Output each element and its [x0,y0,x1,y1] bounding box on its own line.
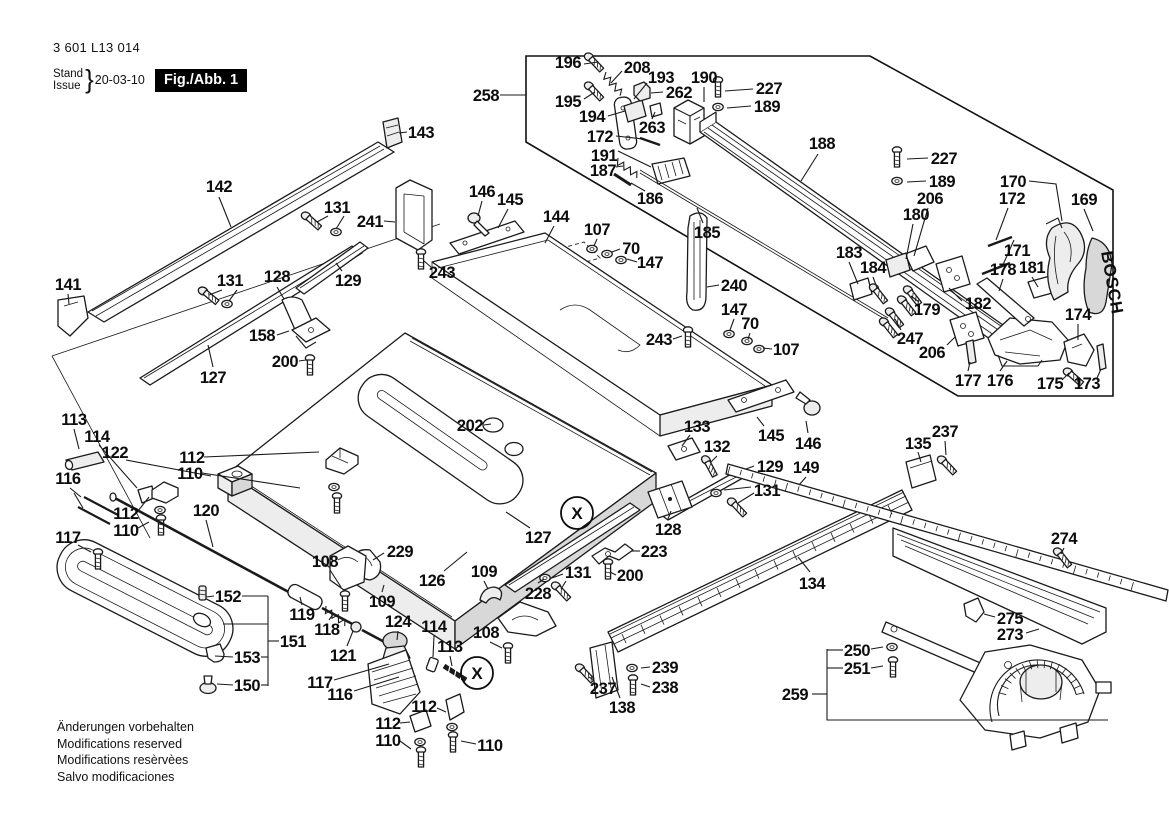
part-label-174: 174 [1065,306,1093,324]
part-label-176: 176 [987,372,1014,390]
part-label-118: 118 [314,621,340,639]
leader-line [727,106,751,108]
leader-line [724,487,751,490]
part-label-187: 187 [590,162,617,180]
part-label-138: 138 [609,699,636,717]
leader-line [1029,181,1062,221]
washer-250 [887,643,897,650]
part-label-190: 190 [691,69,718,87]
handle-cover-169: BOSCH [1084,238,1127,316]
part-label-127: 127 [200,369,227,387]
part-label-178: 178 [990,261,1017,279]
part-label-109: 109 [369,593,396,611]
part-label-223: 223 [641,543,668,561]
part-label-158: 158 [249,327,276,345]
leader-line [478,201,482,216]
screw-110-bl [416,747,425,767]
leader-line [612,249,620,252]
pin-186 [614,174,631,185]
part-label-263: 263 [639,119,666,137]
washer-239 [627,664,637,671]
notice-en: Modifications reserved [57,736,194,753]
part-label-108: 108 [473,624,500,642]
clip-263 [650,103,662,117]
section-marker-label: X [571,504,583,523]
part-label-202: 202 [457,417,484,435]
clip-112-br [446,694,464,720]
leader-line [400,741,411,749]
part-label-194: 194 [579,108,607,126]
figure-label: Fig./Abb. 1 [155,69,247,92]
screw-200-upper [305,355,314,375]
part-label-133: 133 [684,418,711,436]
part-label-152: 152 [215,588,242,606]
notice-de: Änderungen vorbehalten [57,719,194,736]
part-label-184: 184 [860,259,888,277]
leader-line [611,71,622,83]
part-label-259: 259 [782,686,809,704]
screw-108-left [340,591,349,611]
screw-110-br [448,732,457,752]
bracket-241 [396,180,432,250]
part-label-146: 146 [469,183,496,201]
leader-line [219,197,231,227]
nut-121 [351,622,361,632]
part-label-112: 112 [375,715,401,733]
washer-110-mid [155,506,165,513]
part-label-112: 112 [411,698,437,716]
brace-glyph: } [85,64,94,95]
leader-line [806,421,808,433]
leader-line [907,158,928,159]
notice-es: Salvo modificaciones [57,769,194,786]
leader-line [738,493,754,503]
part-label-110: 110 [477,737,503,755]
cam-lever-170 [1046,218,1085,300]
part-label-243: 243 [646,331,673,349]
part-label-153: 153 [234,649,261,667]
part-label-128: 128 [655,521,682,539]
washer-131-right [711,489,721,496]
screw-117-left [93,549,102,569]
issue-label: Issue [53,80,83,92]
bolt-131-lower [548,581,574,602]
part-label-135: 135 [905,435,932,453]
exploded-parts-diagram-page: BOSCH [0,0,1169,826]
part-label-141: 141 [55,276,82,294]
leader-line [801,154,818,181]
leader-line [849,262,858,284]
screw-238 [628,675,637,695]
leader-line [277,331,289,335]
leader-line [799,477,806,485]
part-label-208: 208 [624,59,651,77]
leader-line [490,642,502,648]
part-label-172: 172 [999,190,1026,208]
part-label-189: 189 [754,98,781,116]
part-label-131: 131 [217,272,244,290]
clamp-174 [1064,334,1094,366]
part-label-181: 181 [1019,259,1046,277]
leader-line [730,319,734,330]
part-label-173: 173 [1074,375,1101,393]
bolt-146-right [796,392,820,415]
part-label-124: 124 [385,613,413,631]
part-label-228: 228 [525,585,552,603]
part-label-182: 182 [965,295,992,313]
clip-275 [964,598,984,622]
part-label-274: 274 [1051,530,1079,548]
part-label-108: 108 [312,553,339,571]
main-table [228,333,656,649]
leader-line [206,520,213,547]
leader-line [641,684,650,687]
part-label-116: 116 [327,686,353,704]
part-label-250: 250 [844,642,871,660]
part-label-121: 121 [330,647,357,665]
leader-line [1026,629,1039,633]
part-label-206: 206 [919,344,946,362]
part-label-195: 195 [555,93,582,111]
part-label-144: 144 [543,208,571,226]
part-label-227: 227 [756,80,783,98]
leader-line [384,221,395,222]
part-label-183: 183 [836,244,863,262]
part-label-188: 188 [809,135,836,153]
leader-line [746,466,754,469]
leader-line [641,667,650,668]
fence-end-cluster: BOSCH [850,147,1127,387]
leader-line [461,741,476,744]
leader-line [1084,209,1093,231]
part-label-169: 169 [1071,191,1098,209]
part-label-109: 109 [471,563,498,581]
part-label-200: 200 [617,567,644,585]
part-label-128: 128 [264,268,291,286]
pin-113-left [65,452,104,470]
end-cap-141 [58,296,88,336]
leader-line [437,708,446,712]
washer-110-br [447,723,457,730]
screw-150 [200,676,216,694]
leader-line [206,596,214,597]
part-label-229: 229 [387,543,414,561]
part-label-170: 170 [1000,173,1027,191]
leader-line [871,647,883,649]
part-label-172: 172 [587,128,614,146]
exploded-parts-diagram: BOSCH [0,0,1169,826]
part-label-119: 119 [289,606,315,624]
leader-line [299,360,306,361]
part-label-131: 131 [754,482,781,500]
part-label-189: 189 [929,173,956,191]
leader-line [347,631,353,646]
issue-date: 20-03-10 [95,73,145,87]
part-label-107: 107 [584,221,611,239]
leader-line [996,208,1008,240]
leader-line [208,345,213,367]
washer-131-mid [331,228,341,235]
screw-237-right [934,455,960,476]
leader-line [725,89,753,91]
leader-line [336,216,344,229]
part-number: 3 601 L13 014 [53,40,145,55]
stand-label: Stand [53,68,83,80]
clip-153 [206,644,224,662]
part-label-129: 129 [757,458,784,476]
leader-line [945,441,946,455]
clip-133 [668,438,700,460]
part-label-251: 251 [844,660,871,678]
leader-line [984,614,995,617]
part-label-113: 113 [437,638,463,656]
washer-110-bl [415,738,425,745]
part-label-241: 241 [357,213,384,231]
part-label-134: 134 [799,575,827,593]
part-label-132: 132 [704,438,731,456]
part-label-175: 175 [1037,375,1064,393]
leader-line [74,429,79,449]
part-label-177: 177 [955,372,982,390]
leader-line [710,456,717,463]
part-label-200: 200 [272,353,299,371]
screw-200-lower [603,559,612,579]
part-label-237: 237 [932,423,959,441]
part-label-149: 149 [793,459,820,477]
pin-172-left [640,138,660,145]
part-label-127: 127 [525,529,552,547]
part-label-70: 70 [741,315,759,333]
leader-line [561,581,566,589]
part-label-129: 129 [335,272,362,290]
part-label-145: 145 [497,191,524,209]
part-label-186: 186 [637,190,664,208]
bolt-131-right [724,497,750,518]
part-label-120: 120 [193,502,220,520]
washer-147-lower [724,330,734,337]
washer-110-top [329,483,339,490]
part-label-110: 110 [375,732,401,750]
leader-line [757,417,764,426]
washer-107-lower [754,345,764,352]
notice-fr: Modifications resèrvèes [57,752,194,769]
part-label-273: 273 [997,626,1024,644]
screw-110-top [332,493,341,513]
leader-line [707,285,719,287]
part-label-145: 145 [758,427,785,445]
part-label-146: 146 [795,435,822,453]
part-label-196: 196 [555,54,582,72]
part-label-258: 258 [473,87,500,105]
part-label-112: 112 [113,505,139,523]
part-label-143: 143 [408,124,435,142]
modification-notices: Änderungen vorbehalten Modifications res… [57,719,194,785]
part-label-171: 171 [1004,242,1031,260]
part-label-116: 116 [55,470,81,488]
part-label-114: 114 [421,618,448,636]
leader-line [627,259,637,262]
part-label-239: 239 [652,659,679,677]
part-label-122: 122 [102,444,129,462]
screw-108-right [503,643,512,663]
part-label-180: 180 [903,206,930,224]
leader-line [907,181,926,182]
screw-243-lower [683,327,692,347]
leader-line [871,666,883,668]
part-label-240: 240 [721,277,748,295]
screw-243-upper [416,249,425,269]
leader-line [584,92,595,99]
part-label-117: 117 [55,529,81,547]
leader-line [618,151,651,167]
washer-189-right [892,177,902,184]
part-label-110: 110 [113,522,139,540]
leader-line [217,684,233,685]
part-label-131: 131 [324,199,351,217]
part-label-151: 151 [280,633,307,651]
part-label-243: 243 [429,264,456,282]
part-label-185: 185 [694,224,721,242]
bolt-146-upper [468,213,489,236]
part-label-179: 179 [914,301,941,319]
leader-line [209,290,222,295]
part-label-142: 142 [206,178,233,196]
part-label-237: 237 [590,680,617,698]
washer-107-upper [587,245,597,252]
leader-line [400,722,410,723]
pin-114-right [426,657,439,672]
section-marker-label: X [471,664,483,683]
leader-line [594,239,597,246]
screw-227-right [892,147,901,167]
part-label-110: 110 [177,465,203,483]
part-label-113: 113 [61,411,87,429]
clip-183 [850,278,872,300]
leader-line [433,636,434,657]
pin-177 [966,340,976,364]
part-label-126: 126 [419,572,446,590]
screw-251 [888,657,897,677]
part-label-227: 227 [931,150,958,168]
part-label-150: 150 [234,677,261,695]
spring-208 [600,72,626,96]
washer-70-upper [602,250,612,257]
leader-line [651,92,663,93]
part-label-131: 131 [565,564,592,582]
part-label-262: 262 [666,84,693,102]
washer-70-lower [742,337,752,344]
washer-189-left [713,103,723,110]
leader-line [138,522,149,528]
clip-112-mid [152,482,178,503]
pin-173 [1097,344,1106,370]
part-label-238: 238 [652,679,679,697]
screw-152 [199,586,206,600]
part-label-147: 147 [637,254,664,272]
part-label-107: 107 [773,341,800,359]
screw-132 [697,454,723,478]
plate-135 [906,455,936,488]
leader-line [450,656,452,666]
title-block: 3 601 L13 014 Stand Issue } 20-03-10 [53,40,145,95]
leader-line [947,337,955,345]
washer-131-left [222,300,232,307]
